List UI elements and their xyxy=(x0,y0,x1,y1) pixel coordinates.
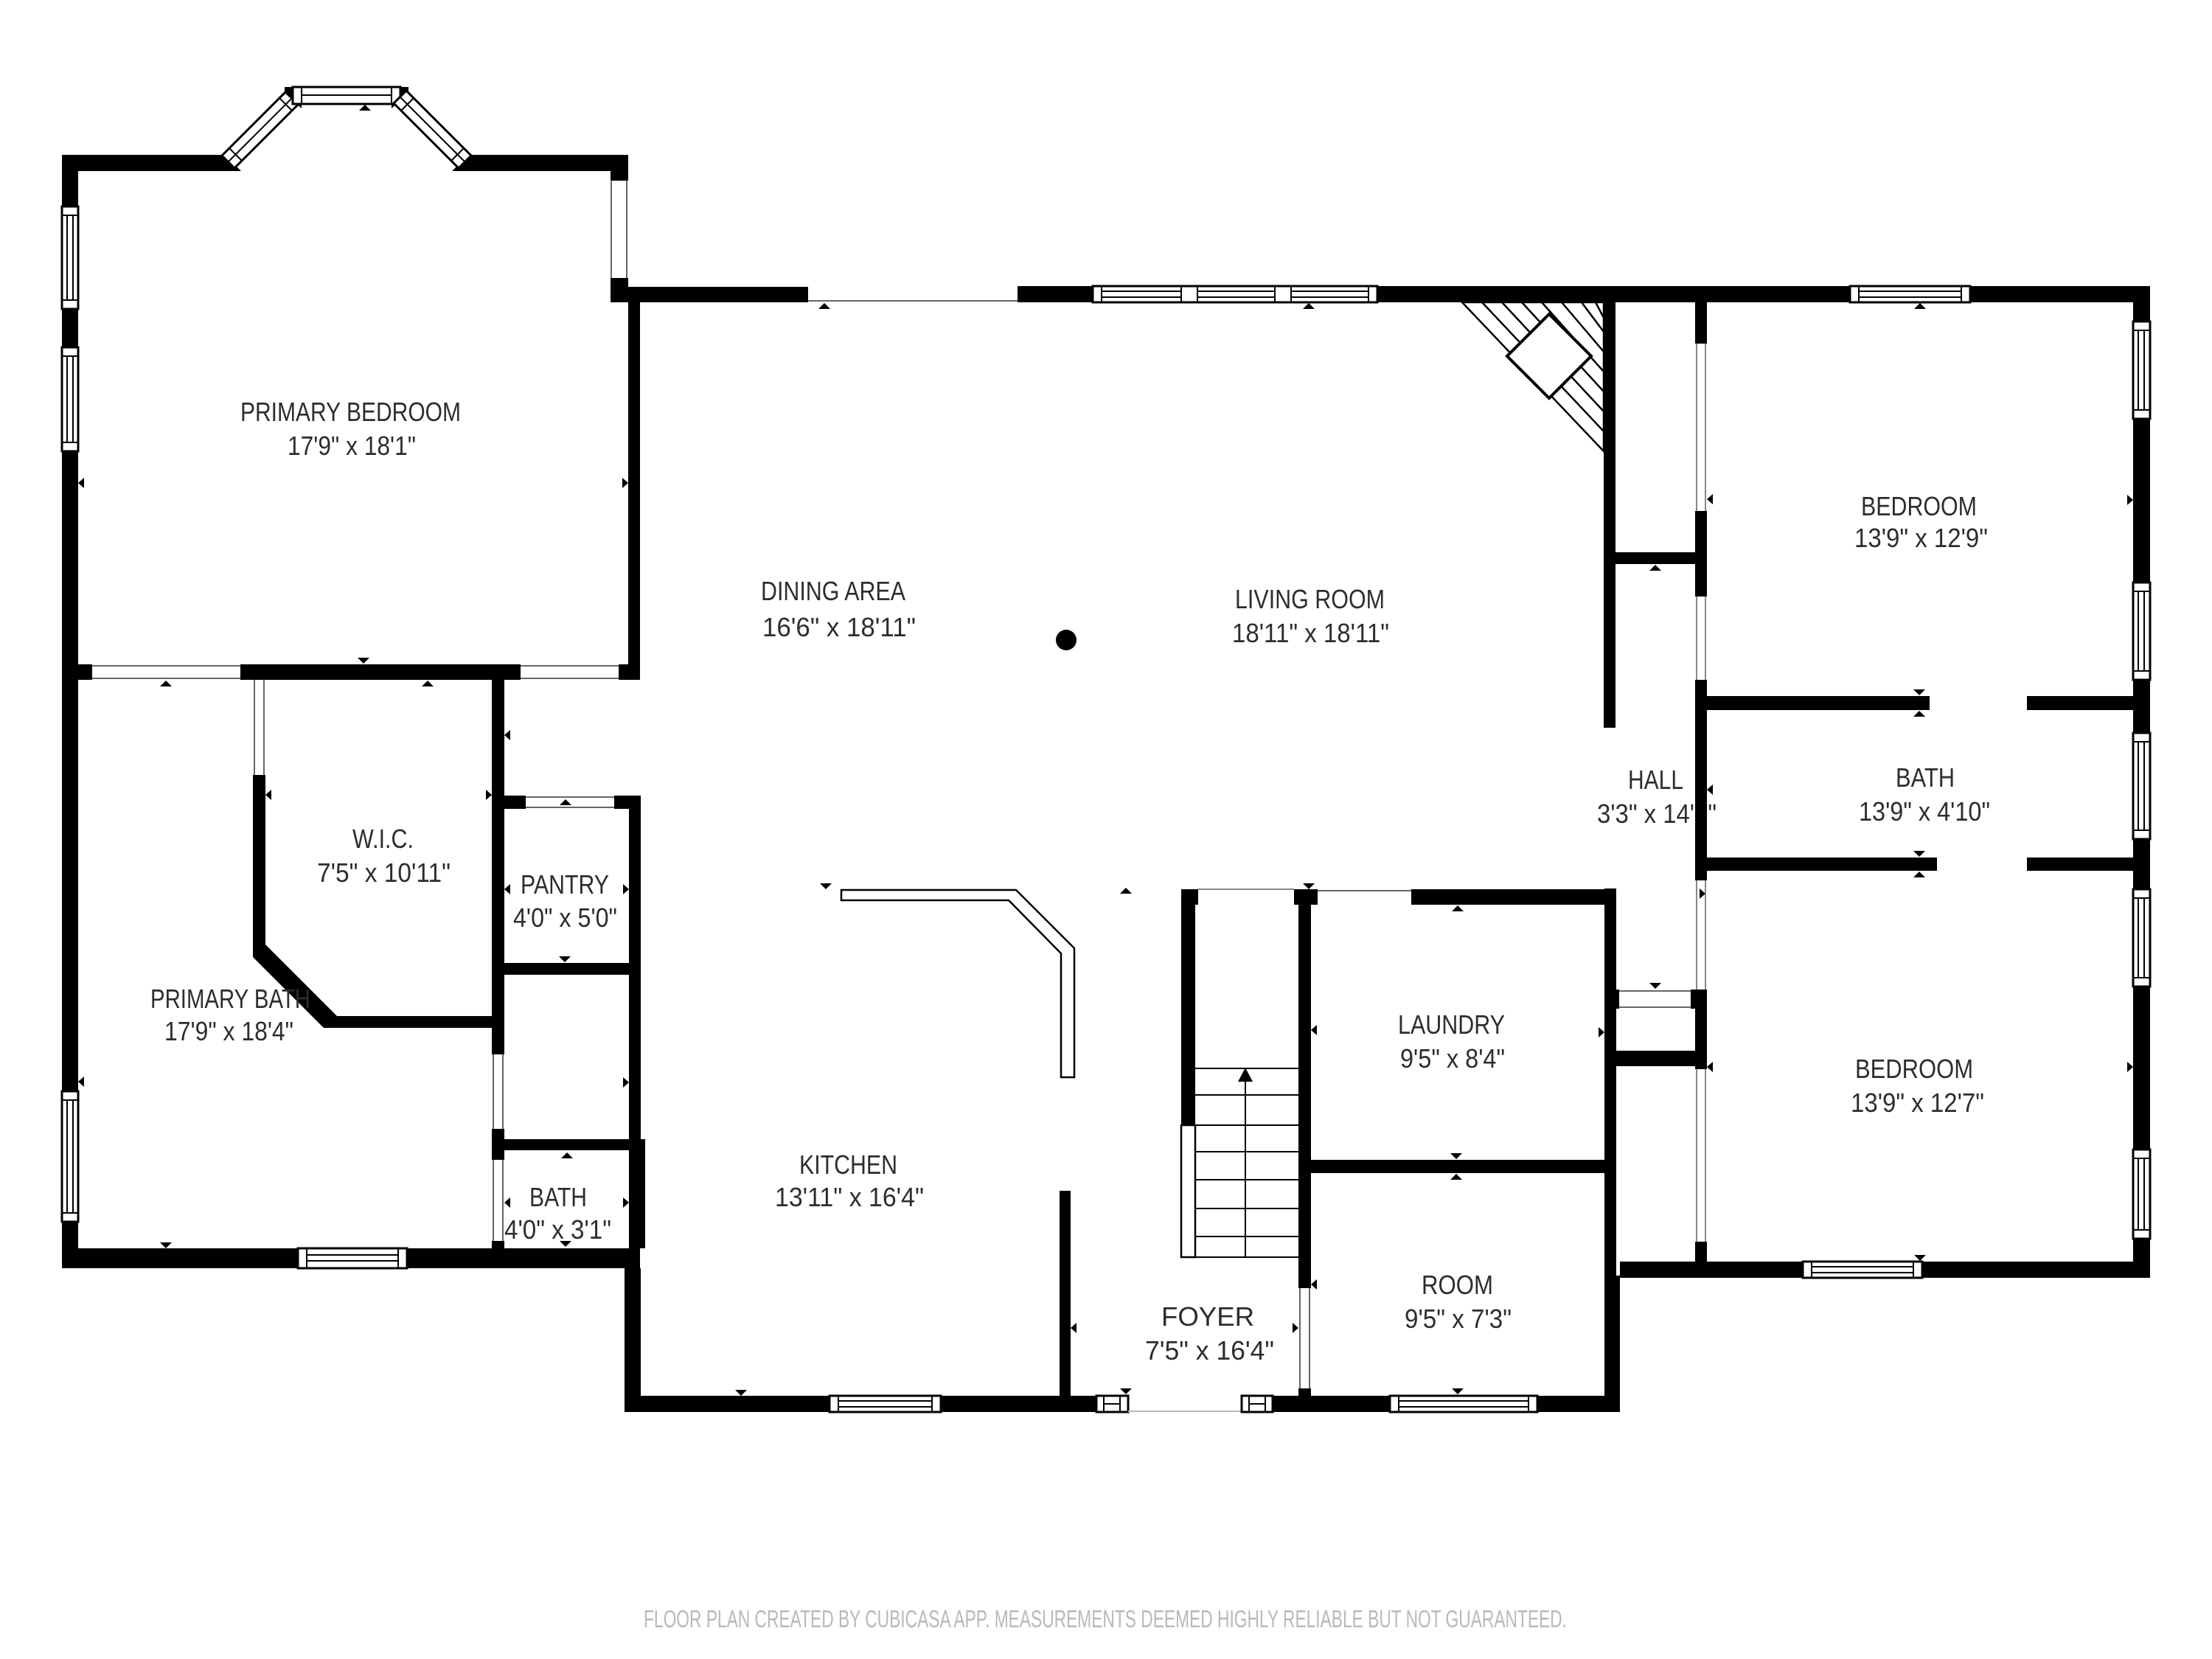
svg-text:BEDROOM: BEDROOM xyxy=(1861,491,1977,521)
svg-text:13'11" x 16'4": 13'11" x 16'4" xyxy=(775,1182,924,1212)
svg-text:9'5" x 8'4": 9'5" x 8'4" xyxy=(1400,1043,1505,1074)
svg-text:13'9" x 4'10": 13'9" x 4'10" xyxy=(1859,796,1990,827)
svg-text:16'6" x 18'11": 16'6" x 18'11" xyxy=(762,612,916,642)
svg-text:BEDROOM: BEDROOM xyxy=(1855,1054,1973,1084)
svg-text:PRIMARY BEDROOM: PRIMARY BEDROOM xyxy=(240,397,461,427)
svg-text:KITCHEN: KITCHEN xyxy=(799,1150,897,1180)
svg-text:7'5" x 10'11": 7'5" x 10'11" xyxy=(317,858,451,888)
svg-text:4'0" x 3'1": 4'0" x 3'1" xyxy=(504,1214,611,1245)
svg-text:7'5" x 16'4": 7'5" x 16'4" xyxy=(1145,1335,1274,1366)
svg-text:BATH: BATH xyxy=(1896,762,1955,793)
svg-text:PANTRY: PANTRY xyxy=(521,869,609,900)
svg-text:LIVING ROOM: LIVING ROOM xyxy=(1235,584,1385,614)
svg-text:HALL: HALL xyxy=(1628,765,1683,795)
svg-text:LAUNDRY: LAUNDRY xyxy=(1398,1009,1505,1040)
svg-text:DINING AREA: DINING AREA xyxy=(761,576,905,606)
svg-text:17'9" x 18'4": 17'9" x 18'4" xyxy=(164,1016,293,1046)
svg-text:PRIMARY BATH: PRIMARY BATH xyxy=(150,984,310,1014)
svg-text:FOYER: FOYER xyxy=(1161,1301,1254,1332)
svg-text:13'9" x 12'7": 13'9" x 12'7" xyxy=(1851,1088,1984,1118)
svg-text:FLOOR PLAN CREATED BY CUBICASA: FLOOR PLAN CREATED BY CUBICASA APP. MEAS… xyxy=(644,1605,1567,1632)
svg-text:17'9" x 18'1": 17'9" x 18'1" xyxy=(288,431,416,461)
svg-text:ROOM: ROOM xyxy=(1422,1270,1493,1300)
svg-text:4'0" x 5'0": 4'0" x 5'0" xyxy=(513,902,617,933)
svg-text:BATH: BATH xyxy=(529,1182,587,1212)
svg-text:18'11" x 18'11": 18'11" x 18'11" xyxy=(1232,618,1389,648)
svg-text:W.I.C.: W.I.C. xyxy=(352,824,414,854)
svg-text:9'5" x 7'3": 9'5" x 7'3" xyxy=(1405,1304,1512,1334)
svg-text:13'9" x 12'9": 13'9" x 12'9" xyxy=(1854,523,1988,553)
